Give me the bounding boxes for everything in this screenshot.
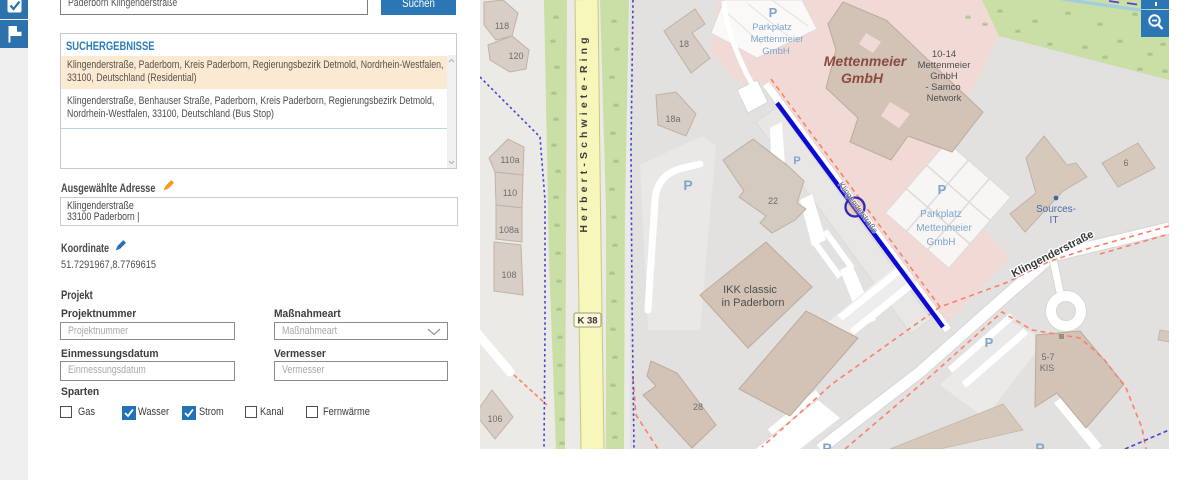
svg-text:Mettenmeier: Mettenmeier (751, 34, 804, 45)
svg-text:GmbH: GmbH (841, 70, 884, 86)
svg-text:P: P (822, 440, 831, 449)
svg-text:108a: 108a (499, 225, 519, 235)
svg-text:P: P (985, 335, 994, 350)
svg-text:Mettenmeier: Mettenmeier (824, 53, 908, 69)
svg-text:18a: 18a (665, 114, 680, 124)
svg-text:KIS: KIS (1040, 363, 1055, 373)
svg-text:P: P (938, 182, 947, 197)
svg-text:118: 118 (495, 21, 509, 31)
svg-text:IKK classic: IKK classic (723, 284, 777, 296)
svg-text:- Samco: - Samco (925, 82, 960, 93)
svg-text:Parkplatz: Parkplatz (920, 209, 962, 220)
svg-text:Mettenmeier: Mettenmeier (916, 223, 972, 234)
svg-text:Mettenmeier: Mettenmeier (918, 60, 971, 71)
svg-text:28: 28 (693, 402, 703, 412)
svg-text:P: P (769, 5, 778, 20)
svg-text:Herbert-Schwiete-Ring: Herbert-Schwiete-Ring (578, 33, 590, 232)
svg-text:P: P (683, 177, 692, 193)
svg-text:10-14: 10-14 (932, 49, 956, 60)
svg-text:Parkplatz: Parkplatz (752, 22, 792, 33)
svg-text:120: 120 (508, 51, 523, 61)
svg-text:106: 106 (487, 414, 502, 424)
svg-text:108: 108 (501, 270, 516, 280)
svg-text:Network: Network (927, 93, 962, 104)
svg-text:18: 18 (679, 39, 689, 49)
svg-text:IT: IT (1050, 215, 1059, 226)
svg-text:GmbH: GmbH (930, 71, 958, 82)
svg-text:P: P (793, 155, 800, 167)
svg-text:GmbH: GmbH (762, 46, 790, 57)
svg-text:in Paderborn: in Paderborn (722, 297, 785, 309)
svg-text:P: P (1035, 440, 1044, 449)
svg-text:6: 6 (1123, 158, 1128, 168)
svg-text:5-7: 5-7 (1041, 352, 1054, 362)
svg-text:GmbH: GmbH (927, 237, 956, 248)
svg-text:K 38: K 38 (577, 316, 597, 327)
svg-text:Sources-: Sources- (1036, 204, 1076, 215)
svg-text:110: 110 (503, 188, 517, 198)
svg-text:110a: 110a (500, 155, 519, 165)
svg-text:22: 22 (768, 196, 778, 206)
